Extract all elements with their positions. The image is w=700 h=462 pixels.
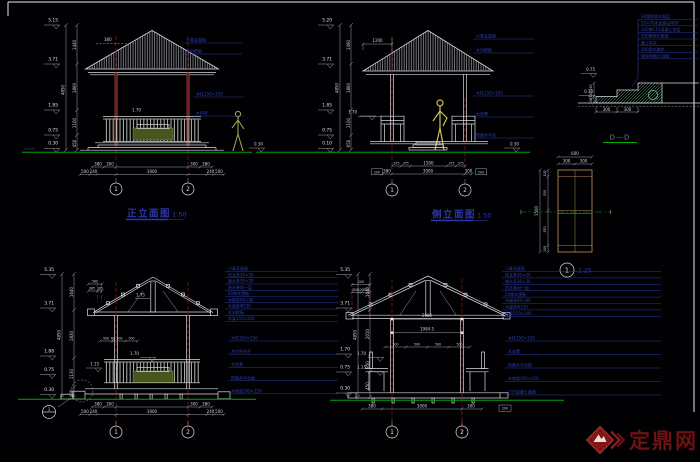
dim-label: 240 [207,409,215,414]
dim-label: 550 [543,226,547,232]
dim-label: 500 [215,409,223,414]
svg-text:木坐凳: 木坐凳 [476,111,488,117]
svg-text:木柱150×150: 木柱150×150 [231,335,258,341]
dim-label: 375 [458,161,464,165]
level-label: 1.85 [322,103,332,109]
level-label: 1.85 [48,103,58,109]
dim-label: 2010 [365,328,370,339]
level-label: 0.10 [322,141,332,147]
level-label: 3.71 [48,57,58,63]
view-title: 侧立面图 [432,209,476,221]
dim-label: 500 [215,169,223,174]
dim-label: 3000 [423,169,434,174]
dim-label: 240 [90,169,98,174]
axis-number: 2 [463,187,467,194]
svg-text:绿化种植土回填: 绿化种植土回填 [641,53,669,59]
side-elevation-view: 5.20 3.71 1.85 0.75 0.10 4850 1490 1860 … [256,18,534,221]
dim-label: 380 [94,402,102,407]
annotation-list: 木柱150×150木栏杆扶手木坐凳防腐木平台板木地梁100×150 [228,335,338,394]
level-label: 5.15 [48,18,58,24]
dim-label: 1100 [72,117,77,128]
dim-label: 1984.5 [420,326,434,331]
level-label: 5.20 [322,18,332,24]
dim-label: 4850 [57,329,62,340]
platform-steps [80,143,224,150]
svg-text:30厚防腐木面层: 30厚防腐木面层 [641,13,670,19]
level-label: 3.71 [322,57,332,63]
svg-text:木椽条60×80: 木椽条60×80 [505,297,531,303]
level-label: 0.75 [322,128,332,134]
dim-label: 240 [90,409,98,414]
dim-label: 450 [69,389,74,397]
axis-number: 2 [186,429,190,436]
level-label: 0.30 [254,142,263,147]
dim-label: 300 [106,402,114,407]
level-label: 5.35 [44,267,54,273]
dim-label: 100 [543,170,547,176]
svg-text:防水卷材一层: 防水卷材一层 [228,284,252,290]
dim-label: 3000 [417,403,428,408]
svg-text:木坐凳: 木坐凳 [508,348,520,354]
dim-label: 375 [393,161,399,165]
dim-label: 380 [202,402,210,407]
level-label: 5.35 [340,267,350,273]
dim-label: 4850 [353,329,358,340]
roof [363,31,493,72]
annotation-leader [632,19,638,86]
front-elevation-view: 5.15 3.71 1.85 0.75 0.30 4850 1440 1860 … [22,18,265,220]
svg-text:木檩条Φ120: 木檩条Φ120 [505,304,528,310]
ground-level-label: ±0.00 [24,147,36,151]
svg-text:小青瓦屋面: 小青瓦屋面 [186,37,206,43]
section-2-view: 5.35 3.71 1.70 0.75 0.30 4850 1640 2010 … [330,265,661,440]
svg-text:木栏杆: 木栏杆 [196,110,208,116]
svg-text:木梁150×200: 木梁150×200 [228,315,255,321]
dim-label: 4850 [61,84,66,95]
svg-text:150厚碎石垫层: 150厚碎石垫层 [641,33,669,39]
tie-beam [95,312,211,315]
dim-label: 375 [448,161,454,165]
dim-label: 1860 [72,82,77,93]
svg-text:防腐木平台板: 防腐木平台板 [231,374,255,380]
axis-number: 1 [390,429,394,436]
svg-text:300宽木踏步: 300宽木踏步 [641,46,665,52]
dim-label: 300 [624,107,632,112]
wood-columns [391,74,467,142]
dim-label: 500 [392,342,398,346]
svg-text:木椽条60×80: 木椽条60×80 [228,296,254,302]
svg-text:20厚木望板: 20厚木望板 [505,291,526,297]
svg-text:木坐凳: 木坐凳 [231,361,243,367]
dim-label: 380 [202,162,210,167]
dim-label: 100 [543,246,547,252]
svg-text:防水卷材一层: 防水卷材一层 [505,284,529,290]
axis-number: 1 [114,429,118,436]
logo-text: 定鼎网 [629,429,698,453]
dim-label: 240 [207,169,215,174]
svg-text:挂瓦条30×30: 挂瓦条30×30 [228,271,254,277]
svg-text:木封檐板: 木封檐板 [476,47,492,53]
dim-label: 600 [571,151,579,156]
dim-label: 150 [589,91,593,97]
fascia [211,309,218,316]
level-label: 3.71 [340,301,350,307]
dim-label: 200 [478,170,484,174]
dim-label: 150 [589,98,593,104]
dim-label: 1.70 [130,351,139,356]
axis-number: 2 [186,186,190,193]
view-scale: 1:50 [477,212,492,220]
dim-label: 380 [94,162,102,167]
dim-label: 1200 [372,38,383,43]
dim-label: 1500 [423,160,434,165]
svg-text:木檩条Φ120: 木檩条Φ120 [228,303,251,309]
dim-label: 1830 [69,330,74,341]
dim-label: 500 [116,336,122,340]
svg-text:木地梁100×150: 木地梁100×150 [508,375,539,381]
level-label: 1.88 [44,349,54,355]
dim-label: 500 [81,169,89,174]
dim-label: 3000 [147,409,158,414]
detail-scale: 1:25 [578,268,592,275]
dim-label: 560 [92,279,98,283]
svg-text:木地梁100×150: 木地梁100×150 [231,388,262,394]
svg-text:木柱150×150: 木柱150×150 [476,90,503,96]
king-post [426,281,430,316]
cad-drawing-sheet: 5.15 3.71 1.85 0.75 0.30 4850 1440 1860 … [0,0,700,462]
level-label: 0.30 [44,387,54,393]
section-1-view: 1 5.35 3.71 1.88 0.75 0.30 4850 1640 183… [18,265,338,438]
svg-text:挂瓦条30×30: 挂瓦条30×30 [505,272,531,278]
dim-label: 300 [363,288,369,292]
struts [400,291,456,315]
annotation-list: 30厚防腐木面层50×70木龙骨@400100厚C15混凝土垫层150厚碎石垫层… [638,13,698,59]
svg-text:木柱150×150: 木柱150×150 [196,91,223,97]
svg-text:木柱150×150: 木柱150×150 [508,335,535,341]
dim-label: 60 [111,336,115,340]
dim-label: 1500 [534,205,539,216]
annotation-list: 小青瓦屋面挂瓦条30×30顺水条30×30防水卷材一层20厚木望板木椽条60×8… [225,265,338,321]
steps-section [596,83,662,103]
svg-text:小青瓦屋面: 小青瓦屋面 [476,33,496,39]
dim-label: 300 [467,403,475,408]
svg-text:小青瓦屋面: 小青瓦屋面 [228,265,248,271]
svg-text:防腐木平台: 防腐木平台 [476,132,496,138]
column-detail-view: 600 300 300 100 550 550 100 1500 1 1:25 [520,151,612,277]
bench [133,128,173,140]
roof-rafters [93,277,213,313]
level-label: 0.75 [586,67,595,72]
bench-seat [381,116,404,143]
level-label: 0.30 [340,386,350,392]
dim-label: 4850 [335,82,340,93]
view-scale: 1:50 [172,211,187,219]
drawing-canvas: 5.15 3.71 1.85 0.75 0.30 4850 1440 1860 … [0,0,700,462]
level-label: 0.75 [340,365,350,371]
dim-label: 300 [563,159,571,164]
level-label: 0.30 [510,142,519,147]
svg-text:素土夯实: 素土夯实 [641,39,657,45]
svg-text:20厚木望板: 20厚木望板 [228,290,249,296]
svg-text:木封檐板: 木封檐板 [228,309,244,315]
side-steps [73,391,85,399]
axis-number: 1 [390,187,394,194]
dim-label: 1.70 [132,108,141,113]
dim-label: 1.15 [90,362,99,367]
dim-label: 300 [190,402,198,407]
platform-posts [120,394,182,399]
dim-label: 300 [465,169,473,174]
dim-label: 1.15 [357,365,366,370]
level-label: 1.70 [340,347,350,353]
level-label: 0.75 [48,128,58,134]
watermark-logo: 定鼎网 [587,427,699,454]
dim-label: 1100 [346,117,351,128]
dim-label: 300 [603,107,611,112]
svg-text:防腐木平台板: 防腐木平台板 [508,362,532,368]
level-label: 0.75 [44,367,54,373]
dim-label: 380 [368,403,376,408]
svg-text:顺水条30×30: 顺水条30×30 [505,278,531,284]
column-centerlines [97,282,188,432]
dim-label: 380 [104,37,112,42]
purlins [369,284,487,306]
dim-label: 500 [103,336,109,340]
dim-label: 380 [383,169,391,174]
dim-label: 200 [502,407,508,411]
dim-label: 300 [580,159,588,164]
platform [370,142,488,144]
dim-label: 500 [414,342,420,346]
king-post [151,281,155,312]
dim-label: 1.70 [357,351,366,356]
svg-text:木栏杆扶手: 木栏杆扶手 [231,348,251,354]
annotation-list: 小青瓦屋面木封檐板 [183,37,242,54]
annotation-list: 木柱150×150木坐凳防腐木平台板木地梁100×150C15混凝土基础 [505,335,661,395]
dim-label: 150 [589,84,593,90]
annotation-list: 小青瓦屋面木封檐板 [473,33,534,53]
dim-label: 500 [128,336,134,340]
level-label: 3.71 [44,301,54,307]
view-title: 正立面图 [127,208,171,220]
center-steps [409,147,447,150]
human-figure [232,111,244,151]
dim-label: 500 [456,342,462,346]
dim-label: 450 [72,139,77,147]
svg-text:木梁150×200: 木梁150×200 [505,310,532,316]
dim-label: 100 [358,280,364,284]
detail-title: D—D [610,134,631,142]
level-label: 0.30 [48,141,58,147]
dim-label: 500 [81,409,89,414]
purlins [107,284,200,304]
dim-label: 1130 [69,368,74,379]
column-centerlines [352,279,462,440]
detail-number: 1 [565,267,569,275]
annotation-list: 木柱150×150木坐凳防腐木平台 [473,90,534,138]
svg-text:顺水条30×30: 顺水条30×30 [228,278,254,284]
detail-number: 1 [48,407,51,412]
dim-label: 2000 [422,313,433,318]
svg-text:100厚C15混凝土垫层: 100厚C15混凝土垫层 [641,26,681,32]
svg-text:小青瓦屋面: 小青瓦屋面 [505,265,525,271]
svg-text:50×70木龙骨@400: 50×70木龙骨@400 [641,20,679,26]
dim-label: 300 [190,162,198,167]
dim-label: 165 [97,286,103,290]
dim-label: 200 [374,170,380,174]
dim-label: 1640 [69,286,74,297]
axis-number: 1 [114,186,118,193]
axis-number: 2 [460,429,464,436]
svg-text:木封檐板: 木封檐板 [186,48,202,54]
dim-label: 550 [543,190,547,196]
dim-label: 450 [365,382,370,390]
svg-text:C15混凝土基础: C15混凝土基础 [508,389,536,395]
bench-section [466,369,489,392]
dim-label: 1860 [346,82,351,93]
dim-label: 375 [403,161,409,165]
dim-label: 1.75 [136,293,145,298]
dim-label: 500 [435,342,441,346]
dim-label: 385 [89,286,95,290]
stair-detail-view: 30厚防腐木面层50×70木龙骨@400100厚C15混凝土垫层150厚碎石垫层… [578,13,700,143]
dim-label: 1440 [72,39,77,50]
roof-rafters [348,276,508,316]
dim-label: 300 [106,162,114,167]
dim-label: 1.70 [348,110,357,115]
dim-label: 1490 [346,39,351,50]
dim-label: 650 [346,139,351,147]
platform [356,393,500,398]
bench [133,371,173,383]
platform [85,389,218,394]
dim-label: 3000 [147,169,158,174]
